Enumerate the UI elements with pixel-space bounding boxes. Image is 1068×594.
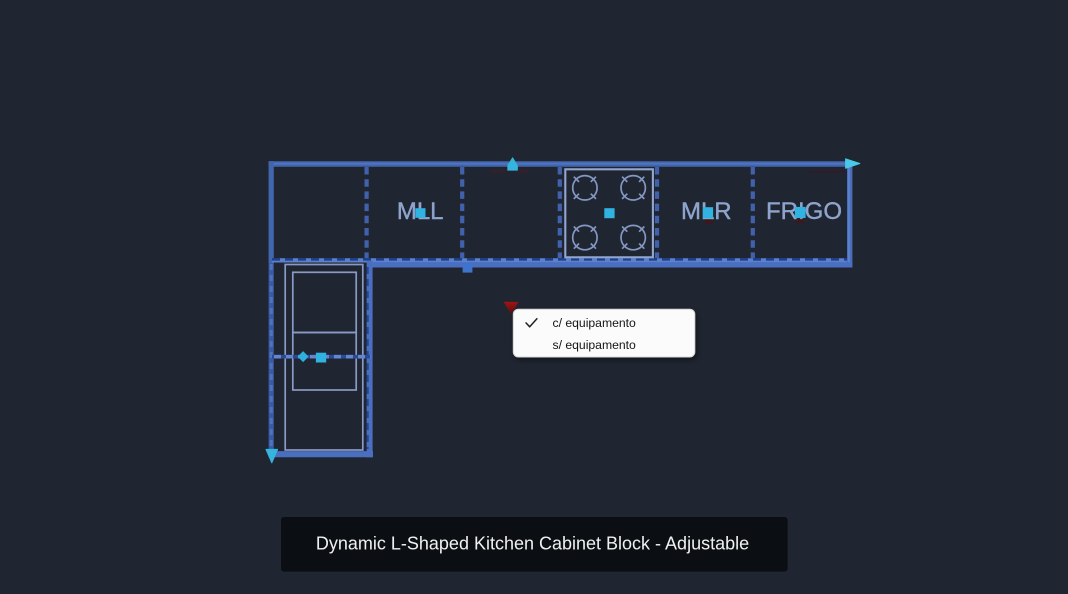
svg-text:c/ equipamento: c/ equipamento (553, 316, 637, 330)
svg-text:Dynamic L-Shaped Kitchen Cabin: Dynamic L-Shaped Kitchen Cabinet Block -… (316, 533, 749, 553)
svg-text:s/ equipamento: s/ equipamento (553, 338, 637, 352)
